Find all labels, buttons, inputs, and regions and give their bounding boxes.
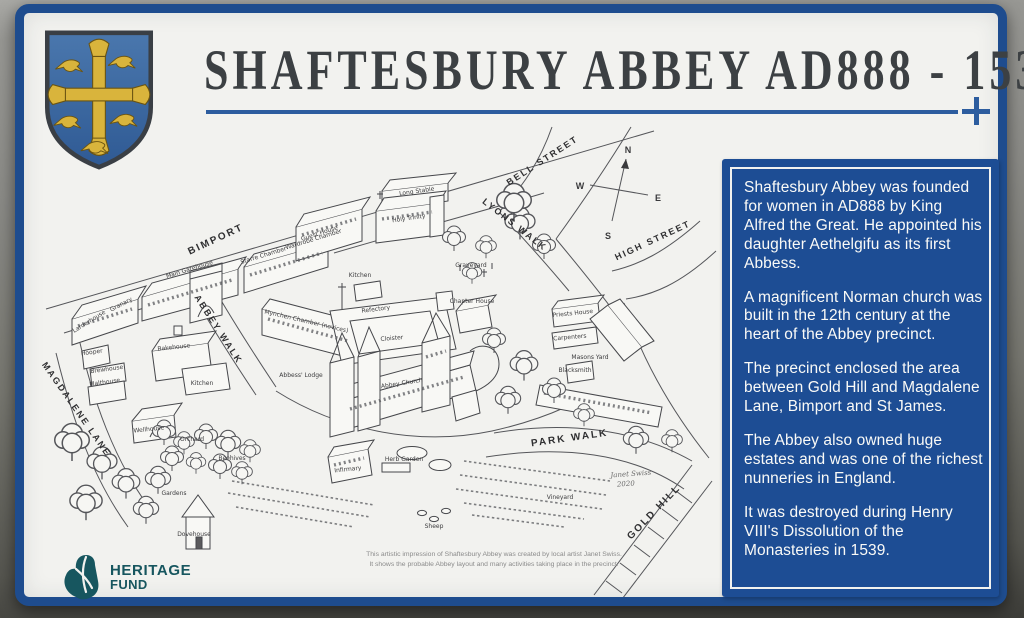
caption-line-1: This artistic impression of Shaftesbury … [324, 550, 664, 560]
history-text-panel: Shaftesbury Abbey was founded for women … [722, 159, 999, 597]
plus-cross-icon [962, 97, 990, 125]
panel-paragraph-founding: Shaftesbury Abbey was founded for women … [744, 179, 983, 274]
map-label: Orchard [180, 436, 204, 443]
map-label: Kitchen [349, 272, 372, 279]
map-label: Sheep [425, 523, 444, 530]
panel-paragraph-estates: The Abbey also owned huge estates and wa… [744, 432, 983, 489]
shaftesbury-coat-of-arms [40, 27, 158, 173]
compass-e: E [655, 193, 661, 203]
street-label-bimport: BIMPORT [186, 222, 245, 257]
map-label: Beehives [218, 455, 245, 462]
map-label: Blacksmith [558, 367, 591, 374]
signature-year: 2020 [616, 479, 636, 488]
map-label: Herb Garden [385, 456, 424, 463]
heritage-sign-board: N W E S BIMPORT BELL STREET LYONS WALK H… [15, 4, 1007, 606]
sign-face: N W E S BIMPORT BELL STREET LYONS WALK H… [24, 13, 998, 597]
heritage-fund-wordmark: HERITAGE FUND [110, 563, 191, 592]
logo-line-fund: FUND [110, 578, 191, 591]
page-title: SHAFTESBURY ABBEY AD888 - 1539 [204, 37, 1024, 103]
heritage-fund-logo: HERITAGE FUND [62, 551, 191, 603]
panel-paragraph-precinct: The precinct enclosed the area between G… [744, 360, 983, 417]
compass-n: N [625, 145, 632, 155]
street-label-park-walk: PARK WALK [530, 428, 609, 450]
map-label: Dovehouse [177, 531, 211, 538]
map-label: Chapter House [450, 298, 495, 305]
map-label: Graveyard [455, 262, 487, 269]
caption-line-2: It shows the probable Abbey layout and m… [324, 560, 664, 570]
panel-paragraph-norman-church: A magnificent Norman church was built in… [744, 289, 983, 346]
map-roads [46, 127, 716, 597]
panel-paragraph-dissolution: It was destroyed during Henry VIII's Dis… [744, 504, 983, 561]
street-label-gold-hill: GOLD HILL [625, 483, 683, 542]
map-label: Vineyard [547, 494, 574, 501]
title-underline [206, 110, 958, 114]
map-label: Gardens [161, 490, 186, 497]
compass-s: S [605, 231, 611, 241]
artist-signature: Janet Swiss 2020 [608, 469, 652, 489]
logo-line-heritage: HERITAGE [110, 563, 191, 578]
crossed-fingers-icon [62, 551, 104, 603]
panel-paragraphs: Shaftesbury Abbey was founded for women … [744, 179, 983, 575]
street-label-bell-street: BELL STREET [505, 134, 580, 188]
compass-w: W [576, 181, 585, 191]
map-label: Masons Yard [571, 354, 608, 361]
map-caption: This artistic impression of Shaftesbury … [324, 550, 664, 569]
signature-name: Janet Swiss [608, 469, 652, 480]
map-label: Kitchen [191, 380, 214, 387]
map-label: Abbess' Lodge [279, 372, 323, 379]
